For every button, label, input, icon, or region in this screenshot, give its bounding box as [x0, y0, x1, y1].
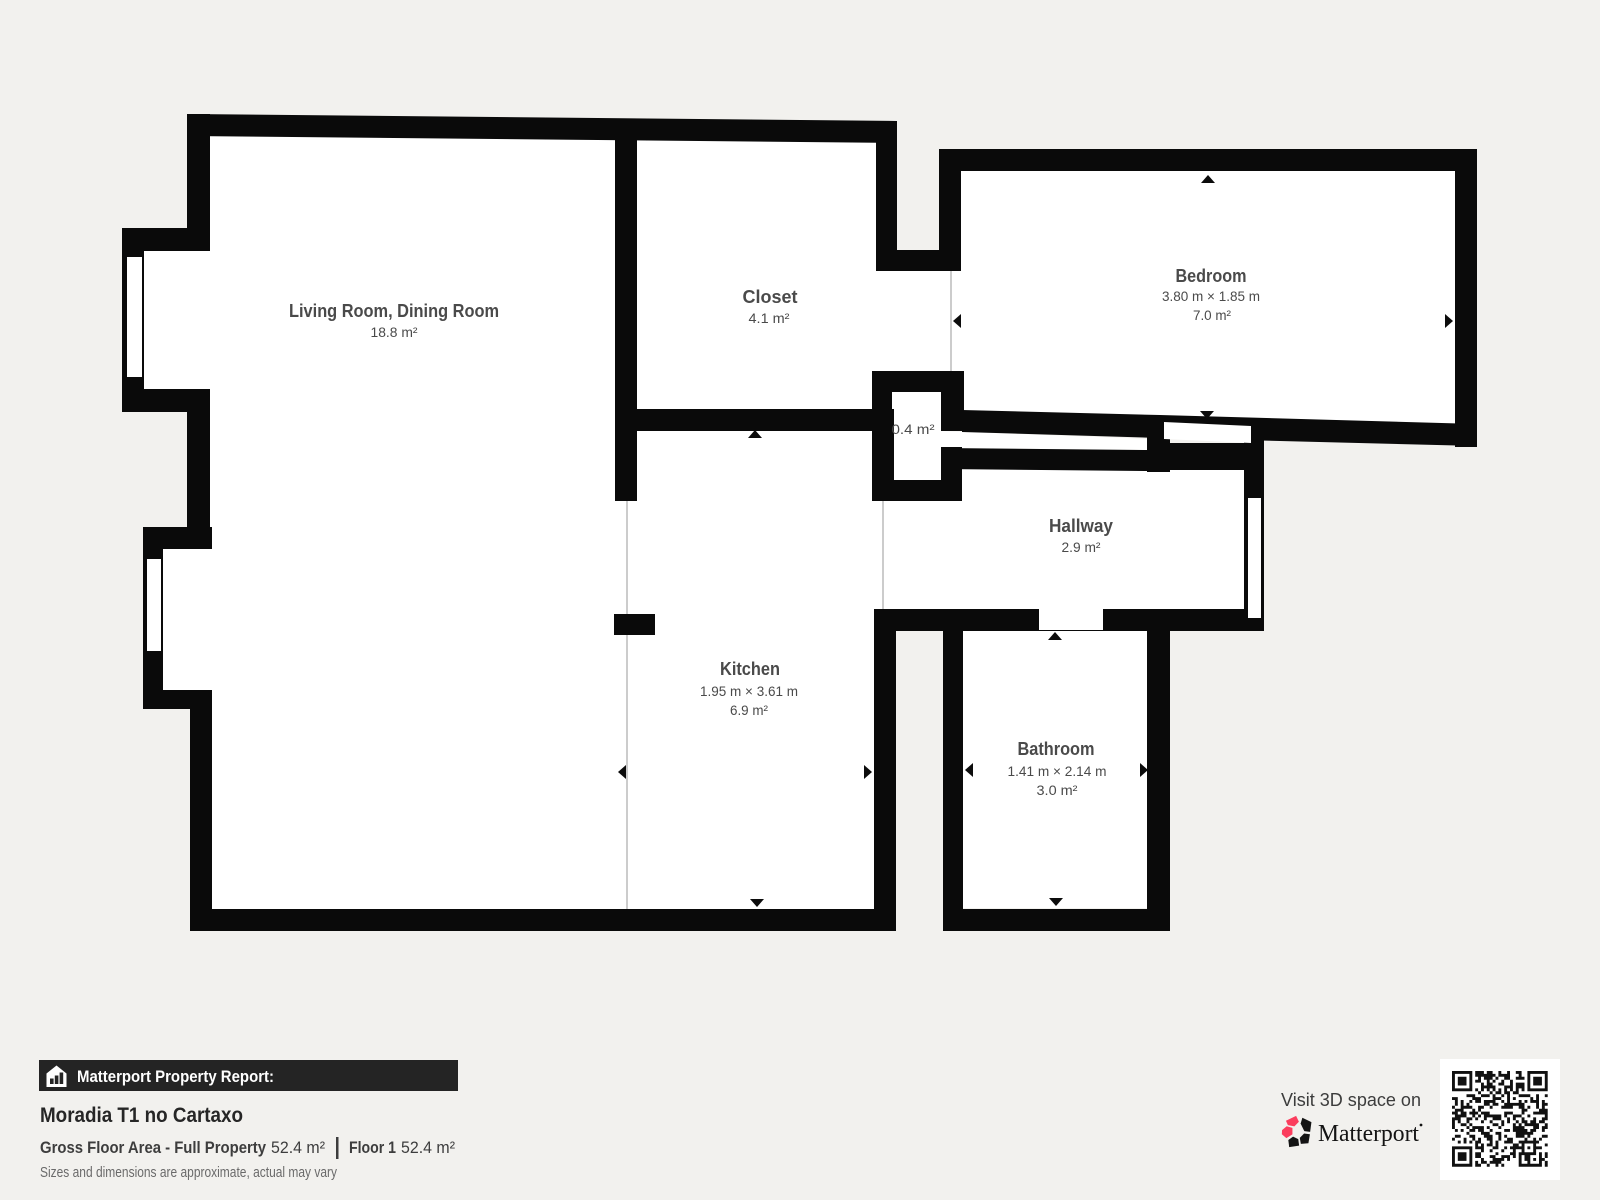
svg-text:52.4 m²: 52.4 m²: [271, 1138, 325, 1157]
svg-text:1.41 m × 2.14 m: 1.41 m × 2.14 m: [1008, 764, 1107, 779]
svg-text:7.0 m²: 7.0 m²: [1193, 308, 1231, 323]
svg-text:Hallway: Hallway: [1049, 516, 1113, 536]
svg-text:2.9 m²: 2.9 m²: [1062, 540, 1102, 555]
svg-text:1.95 m × 3.61 m: 1.95 m × 3.61 m: [700, 684, 798, 699]
svg-text:0.4 m²: 0.4 m²: [892, 422, 936, 437]
svg-text:Matterport Property Report:: Matterport Property Report:: [77, 1067, 274, 1086]
svg-text:Moradia T1 no Cartaxo: Moradia T1 no Cartaxo: [40, 1104, 243, 1127]
svg-text:Kitchen: Kitchen: [720, 659, 780, 679]
svg-text:3.0 m²: 3.0 m²: [1037, 783, 1079, 798]
svg-text:3.80 m × 1.85 m: 3.80 m × 1.85 m: [1162, 289, 1260, 304]
svg-text:18.8 m²: 18.8 m²: [371, 325, 419, 340]
svg-text:Visit 3D space on: Visit 3D space on: [1281, 1089, 1421, 1110]
svg-text:52.4 m²: 52.4 m²: [401, 1138, 455, 1157]
svg-text:Sizes and dimensions are appro: Sizes and dimensions are approximate, ac…: [40, 1165, 338, 1181]
svg-text:Bedroom: Bedroom: [1176, 266, 1247, 286]
svg-text:Floor 1: Floor 1: [349, 1138, 396, 1157]
svg-text:Bathroom: Bathroom: [1018, 739, 1095, 759]
svg-text:4.1 m²: 4.1 m²: [749, 311, 791, 326]
svg-text:Gross Floor Area - Full Proper: Gross Floor Area - Full Property: [40, 1138, 266, 1157]
svg-text:6.9 m²: 6.9 m²: [730, 703, 768, 718]
svg-text:Living Room, Dining Room: Living Room, Dining Room: [289, 301, 499, 321]
svg-text:Matterport: Matterport: [1318, 1121, 1419, 1147]
svg-text:Closet: Closet: [743, 287, 798, 307]
